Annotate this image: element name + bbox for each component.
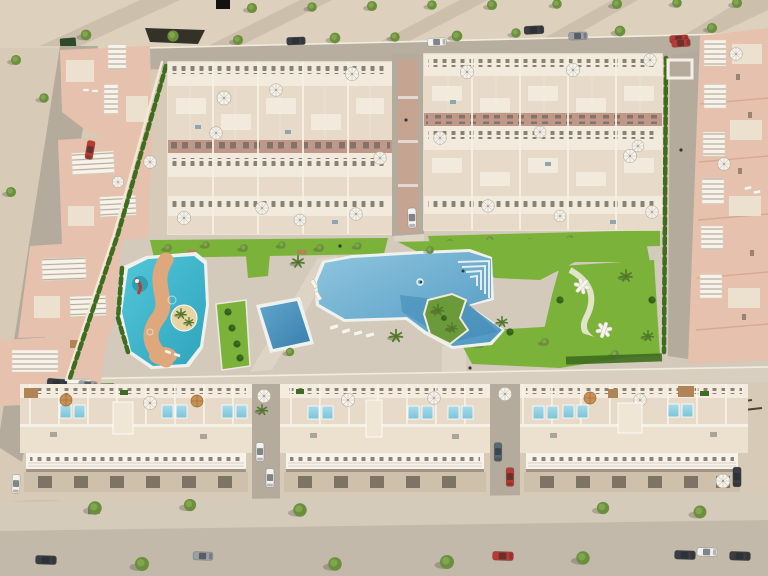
bush-icon (506, 328, 513, 335)
bench (297, 250, 307, 254)
aerial-render (0, 0, 768, 576)
ac-unit (50, 432, 57, 437)
parasol (350, 208, 363, 221)
terrace-band (168, 177, 392, 196)
ac-unit (200, 434, 207, 439)
louver-windows (30, 455, 242, 461)
parasol (460, 65, 473, 78)
parasol (143, 396, 156, 409)
lounger (92, 90, 98, 93)
car-white (12, 475, 20, 494)
car-red (506, 468, 514, 487)
parasol (623, 149, 636, 162)
parasol (177, 211, 190, 224)
central-street (392, 54, 424, 236)
pedestrian (679, 148, 682, 151)
roof-terrace (34, 296, 60, 318)
lane-doors (426, 115, 660, 124)
car-white (266, 469, 274, 488)
townhouse-block-east (424, 54, 662, 230)
communal-garden (28, 228, 768, 394)
car-dark (35, 555, 56, 564)
bottom-road-zone (0, 492, 768, 576)
car-white (428, 38, 447, 46)
stair-core (366, 400, 382, 437)
louver-windows (290, 455, 480, 461)
parasol (341, 393, 354, 406)
roof-windows (172, 158, 388, 166)
parasol (534, 126, 546, 138)
car-red (671, 38, 690, 47)
ac-unit (310, 433, 317, 438)
crossing (398, 140, 418, 143)
main-roof (280, 427, 490, 453)
lounger (83, 89, 89, 92)
townhouse-block-west (168, 62, 392, 234)
parapet (280, 424, 490, 427)
bush-icon (224, 308, 231, 315)
parasol (345, 67, 358, 80)
car-gray (193, 552, 213, 561)
parasol (566, 63, 579, 76)
parasol (374, 152, 387, 165)
unit-lines (20, 384, 252, 424)
side-street-1 (252, 384, 280, 502)
ac-unit (710, 432, 717, 437)
pedestrian (404, 118, 407, 121)
car-white (697, 548, 717, 557)
car-red (492, 551, 513, 560)
side-street-2 (490, 384, 520, 502)
roof-terrace (68, 206, 94, 226)
south-path (442, 346, 466, 374)
parasol (632, 140, 644, 152)
bush-icon (648, 296, 655, 303)
bush-icon (228, 324, 235, 331)
bush-icon (441, 315, 447, 321)
parasol (716, 474, 730, 488)
pergola (678, 386, 694, 397)
pergola-roof (42, 257, 87, 281)
parasol-tan (191, 395, 203, 407)
car-dark (674, 550, 695, 559)
parasol (217, 91, 231, 105)
car-blue (494, 443, 502, 462)
parasol (434, 132, 447, 145)
planter-box (120, 390, 128, 395)
apartment-building-1 (20, 384, 252, 492)
main-roof (20, 427, 252, 453)
apartment-row (12, 384, 748, 502)
pedestrian (468, 366, 471, 369)
apartment-building-3 (520, 384, 748, 492)
apartment-building-2 (280, 384, 490, 492)
parasol (428, 392, 441, 405)
parasol (644, 54, 657, 67)
street-hedge (664, 58, 666, 352)
parasol (646, 206, 659, 219)
pergola-roof (100, 195, 137, 217)
ground-floor (24, 472, 248, 492)
pergola-roof (12, 350, 58, 372)
pedestrian (338, 244, 341, 247)
parasol (482, 200, 495, 213)
crossing (398, 184, 418, 187)
paved-strip (398, 60, 418, 232)
ac-unit (550, 433, 557, 438)
car-dark (524, 25, 544, 34)
parasol (210, 127, 223, 140)
bush-icon (556, 296, 563, 303)
kids-splash-pool (118, 252, 209, 369)
crossing (398, 96, 418, 99)
parasol (718, 158, 731, 171)
pergola-roof (104, 84, 118, 114)
stair-core (618, 403, 642, 433)
beach-entry (149, 347, 177, 365)
roof-windows (428, 199, 658, 207)
parasol (294, 214, 306, 226)
pergola (24, 388, 38, 398)
ac-unit (452, 434, 459, 439)
right-terraced-district (664, 28, 768, 410)
car-dark (733, 467, 741, 487)
car-white (256, 443, 264, 462)
roof-windows (428, 59, 658, 67)
pergola-roof (108, 44, 126, 70)
terrace-band (424, 214, 662, 230)
parasol-tan (60, 394, 72, 406)
parapet (20, 424, 252, 427)
car-black (729, 551, 750, 560)
bush-icon (236, 354, 243, 361)
parasol (257, 389, 270, 402)
bush-icon (233, 340, 240, 347)
planter-box (700, 391, 709, 396)
roof-windows (172, 200, 388, 208)
parasol (730, 48, 743, 61)
parasol (270, 84, 283, 97)
car-dark (287, 37, 306, 45)
car-gray (569, 32, 588, 40)
render-canvas (0, 0, 768, 576)
planter-box (296, 389, 304, 394)
louver-windows (530, 455, 734, 461)
dark-material-pile (216, 0, 230, 9)
hedge-planter (216, 300, 250, 370)
parasol (554, 210, 566, 222)
stair-core (113, 402, 133, 434)
car-white (408, 208, 417, 228)
parasol-tan (584, 392, 596, 404)
parasol (498, 387, 511, 400)
ground-floor (524, 472, 740, 492)
parasol (112, 176, 123, 187)
terrace-door (608, 389, 618, 398)
roof-terrace (126, 96, 148, 122)
parasol (256, 202, 269, 215)
roof-terrace (66, 60, 94, 82)
lane-doors (170, 142, 390, 151)
parasol (144, 156, 157, 169)
